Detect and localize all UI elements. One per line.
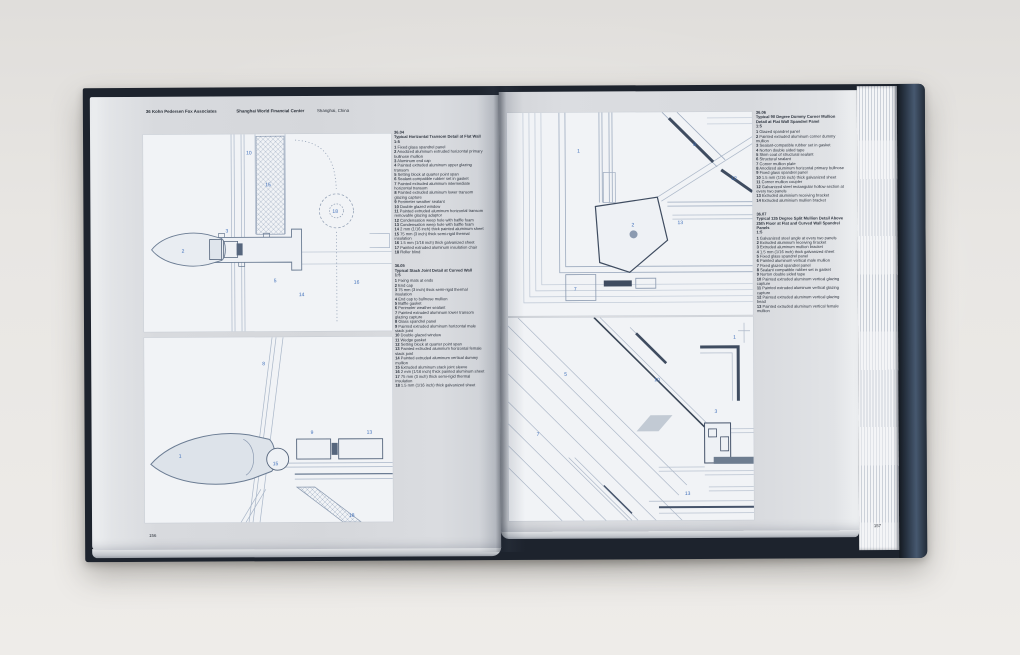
page-header: 36 Kohn Pedersen Fox Associates Shanghai… [146, 108, 491, 122]
legend-section-title: Typical 90 Degree Dummy Corner Mullion D… [756, 115, 846, 125]
svg-text:15: 15 [265, 182, 271, 188]
drawing-36-05-svg: 1 8 9 15 18 13 [144, 337, 393, 523]
detail-drawing-36-04: 2 3 15 10 18 5 14 16 [143, 134, 392, 332]
legend-item: 12 Galvanized steel rectangular hollow s… [756, 184, 846, 194]
open-book: 36 Kohn Pedersen Fox Associates Shanghai… [83, 84, 927, 562]
svg-text:3: 3 [714, 409, 717, 415]
legend-items: 1 Fixing mats at ends2 End cap3 75 mm (3… [395, 278, 485, 388]
drawing-36-04-svg: 2 3 15 10 18 5 14 16 [143, 134, 392, 332]
legend-item: 7 Painted extruded aluminum intermediate… [394, 181, 484, 191]
detail-drawing-36-05: 1 8 9 15 18 13 [144, 337, 393, 523]
legend-scale: 1:5 [395, 273, 485, 278]
legend-item: 7 Painted extruded aluminum lower transo… [395, 310, 485, 320]
legend-scale: 1:5 [756, 124, 846, 129]
svg-text:14: 14 [299, 292, 305, 298]
legend-item: 17 75 mm (3 inch) thick semi-rigid therm… [395, 374, 485, 384]
svg-text:1: 1 [577, 149, 580, 155]
svg-text:3: 3 [226, 228, 229, 234]
legend-item: 4 Painted extruded aluminum upper glazin… [394, 163, 484, 173]
svg-text:2: 2 [182, 249, 185, 255]
legend-scale: 1:5 [757, 230, 847, 235]
page-number-left: 156 [149, 534, 189, 544]
legend-items: 1 Glazed spandrel panel2 Painted extrude… [756, 130, 846, 203]
svg-text:7: 7 [574, 287, 577, 293]
svg-text:2: 2 [631, 222, 634, 228]
legend-section-36-06: 36.06 Typical 90 Degree Dummy Corner Mul… [756, 110, 846, 203]
svg-text:5: 5 [274, 278, 277, 284]
right-legend-column: 36.06 Typical 90 Degree Dummy Corner Mul… [756, 110, 848, 525]
svg-text:18: 18 [332, 209, 338, 215]
svg-text:13: 13 [367, 430, 373, 436]
photo-of-open-book: 36 Kohn Pedersen Fox Associates Shanghai… [0, 0, 1020, 655]
legend-item: 10 Painted extruded aluminum vertical gl… [757, 277, 847, 287]
svg-text:13: 13 [677, 220, 683, 226]
legend-item: 11 Painted extruded aluminum horizontal … [394, 209, 484, 219]
detail-drawing-36-06: 1 2 7 8 12 13 [507, 112, 753, 316]
header-project: Shanghai World Financial Center [236, 109, 304, 114]
svg-text:9: 9 [311, 430, 314, 436]
legend-item: 2 Anodized aluminum extruded horizontal … [394, 150, 484, 160]
legend-item: 11 Painted extruded aluminum vertical gl… [757, 286, 847, 296]
legend-section-36-05: 36.05 Typical Stack Joint Detail at Curv… [395, 264, 486, 389]
svg-text:7: 7 [537, 432, 540, 438]
header-location: Shanghai, China [317, 109, 349, 114]
svg-text:15: 15 [273, 461, 279, 467]
left-legend-column: 36.04 Typical Horizontal Transom Detail … [394, 130, 486, 540]
glass-line [594, 317, 705, 428]
drawing-36-06-svg: 1 2 7 8 12 13 [507, 112, 753, 316]
svg-text:8: 8 [693, 142, 696, 148]
legend-item: 13 Painted extruded aluminum vertical fe… [757, 304, 847, 314]
legend-item: 13 Painted extruded aluminum horizontal … [395, 347, 485, 357]
svg-text:10: 10 [246, 150, 252, 156]
legend-item: 2 Painted extruded aluminum corner dummy… [756, 134, 846, 144]
legend-item: 9 Painted extruded aluminum horizontal m… [395, 324, 485, 334]
legend-items: 1 Fixed glass spandrel panel2 Anodized a… [394, 145, 484, 255]
insulation-slab [636, 415, 672, 431]
legend-item: 14 Painted extruded aluminum vertical du… [395, 356, 485, 366]
svg-text:18: 18 [349, 513, 355, 519]
diagonal-bracket [636, 333, 666, 363]
legend-items: 1 Galvanized steel angle at every two pa… [757, 236, 847, 314]
legend-item: 18 1.5 mm (1/16 inch) thick galvanized s… [395, 383, 485, 388]
legend-item: 3 75 mm (3 inch) thick semi-rigid therma… [395, 288, 485, 298]
legend-section-36-04: 36.04 Typical Horizontal Transom Detail … [394, 130, 485, 255]
legend-item: 15 75 mm (3 inch) thick semi-rigid therm… [395, 232, 485, 242]
page-stack-edge [857, 86, 899, 550]
legend-section-title: Typical 135 Degree Split Mullion Detail … [756, 216, 846, 230]
legend-item: 12 Painted extruded aluminum vertical gl… [757, 295, 847, 305]
svg-text:1: 1 [733, 335, 736, 341]
legend-section-title: Typical Stack Joint Detail at Curved Wal… [395, 268, 485, 273]
legend-item: 18 Roller blind [395, 250, 485, 255]
svg-text:13: 13 [685, 491, 691, 497]
detail-drawing-36-07: 1 3 5 7 10 13 [508, 317, 754, 521]
svg-text:8: 8 [262, 361, 265, 367]
book-cover-spine-edge [897, 84, 927, 558]
diagonal-glazing-bar [669, 118, 713, 162]
svg-text:12: 12 [731, 176, 737, 182]
legend-item: 8 Painted extruded aluminum lower transo… [394, 191, 484, 201]
svg-text:16: 16 [354, 280, 360, 286]
header-firm: 36 Kohn Pedersen Fox Associates [146, 110, 217, 115]
bullnose-mullion-profile [149, 430, 277, 489]
svg-text:1: 1 [179, 454, 182, 460]
legend-section-title: Typical Horizontal Transom Detail at Fla… [394, 135, 484, 140]
legend-scale: 1:5 [394, 139, 484, 144]
legend-item: 14 Extruded aluminium mullion bracket [756, 198, 846, 203]
drawing-36-07-svg: 1 3 5 7 10 13 [508, 317, 754, 521]
legend-section-36-07: 36.07 Typical 135 Degree Split Mullion D… [756, 212, 846, 314]
svg-text:10: 10 [654, 377, 660, 383]
page-number-right: 157 [841, 524, 881, 534]
svg-text:5: 5 [564, 372, 567, 378]
